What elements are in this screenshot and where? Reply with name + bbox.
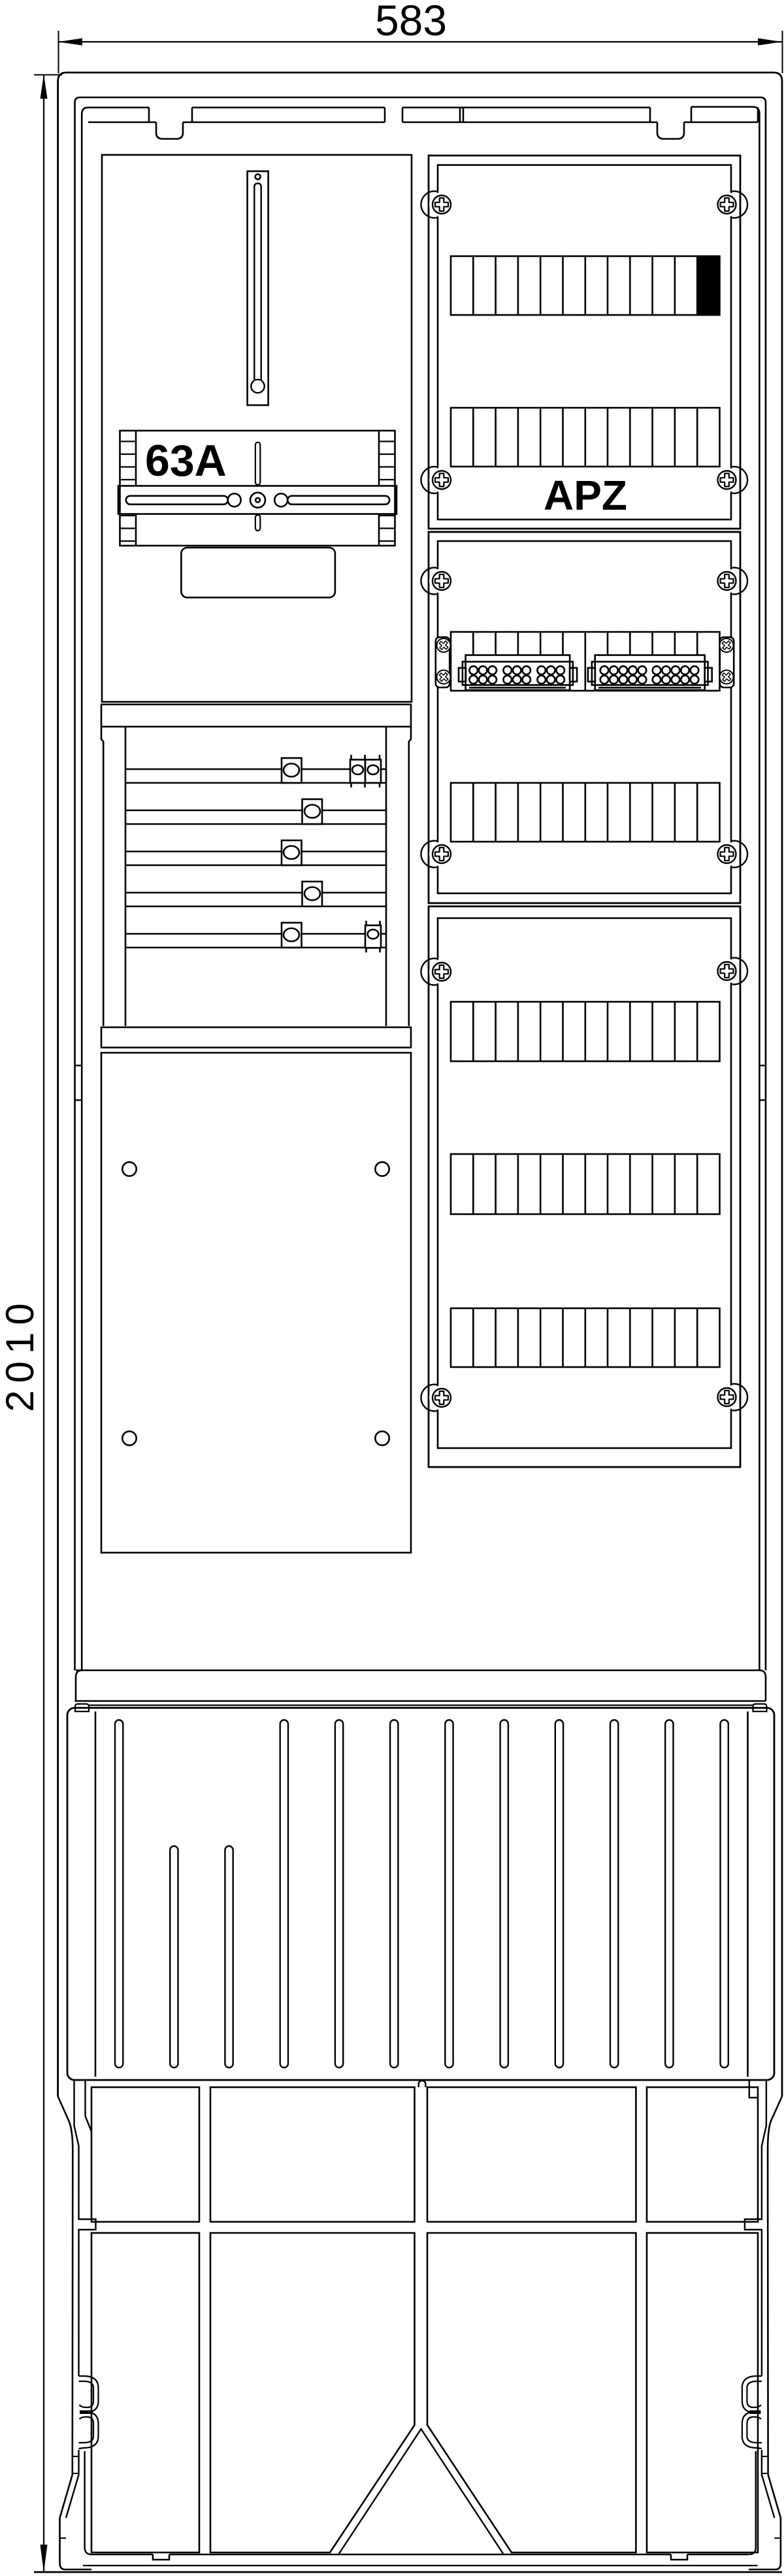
svg-text:APZ: APZ: [544, 472, 627, 519]
svg-text:583: 583: [375, 0, 447, 44]
svg-text:63A: 63A: [145, 436, 227, 486]
svg-text:2010: 2010: [0, 1296, 42, 1412]
